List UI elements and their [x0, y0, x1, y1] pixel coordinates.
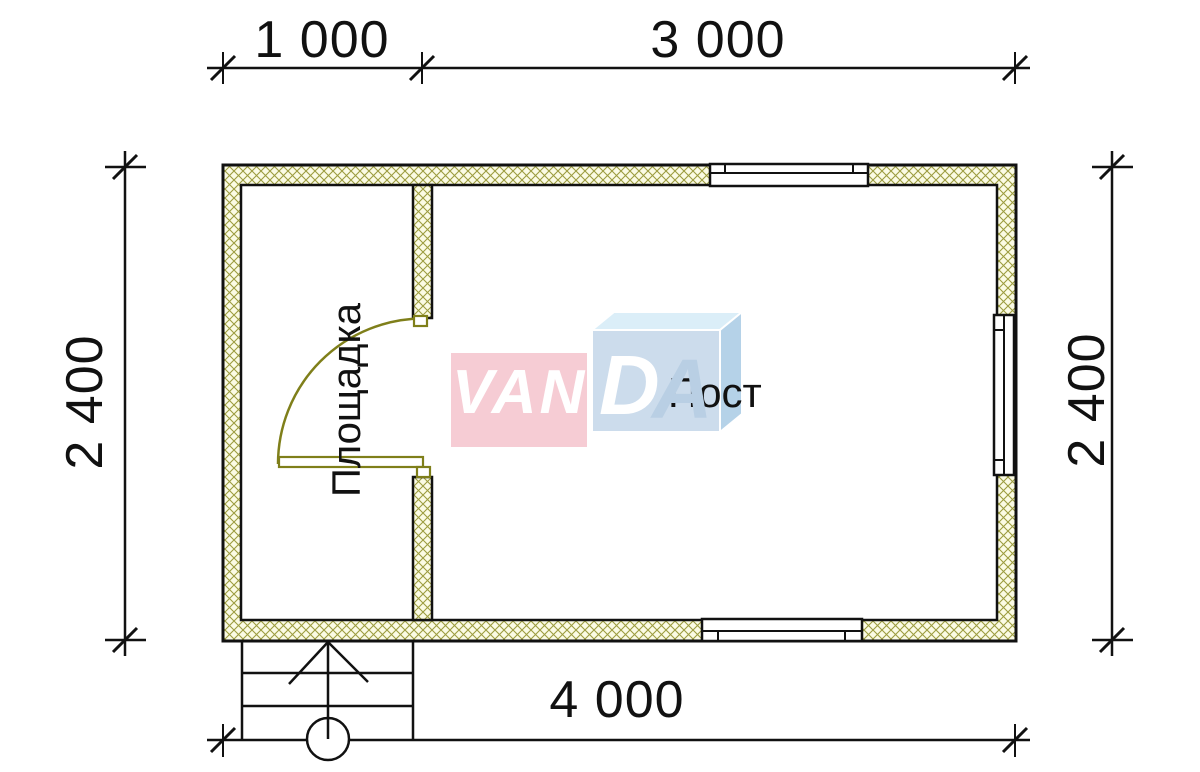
dimension-label-left: 2 400	[59, 302, 111, 502]
window-bottom	[702, 619, 862, 641]
watermark-text-d: D	[599, 343, 660, 427]
dimension-label-bottom: 4 000	[517, 674, 717, 726]
door-hinge-bottom	[417, 467, 430, 477]
floor-plan-drawing: 1 000 3 000 2 400 2 400 4 000 Площадка П…	[0, 0, 1200, 772]
partition-wall	[413, 185, 432, 620]
watermark-pink-box-top-face	[450, 334, 608, 352]
dimension-label-right: 2 400	[1061, 300, 1113, 500]
dimension-label-top-right: 3 000	[618, 14, 818, 66]
watermark-text-van: VAN	[452, 362, 587, 424]
stairs-direction-arrow	[289, 642, 368, 760]
door-hinge-top	[414, 316, 427, 326]
room-label-platform: Площадка	[327, 280, 367, 520]
window-right	[994, 315, 1014, 475]
window-top	[710, 164, 868, 186]
watermark-blue-box-top-face	[592, 312, 742, 330]
dimension-label-top-left: 1 000	[222, 14, 422, 66]
watermark-text-a: A	[652, 347, 713, 431]
